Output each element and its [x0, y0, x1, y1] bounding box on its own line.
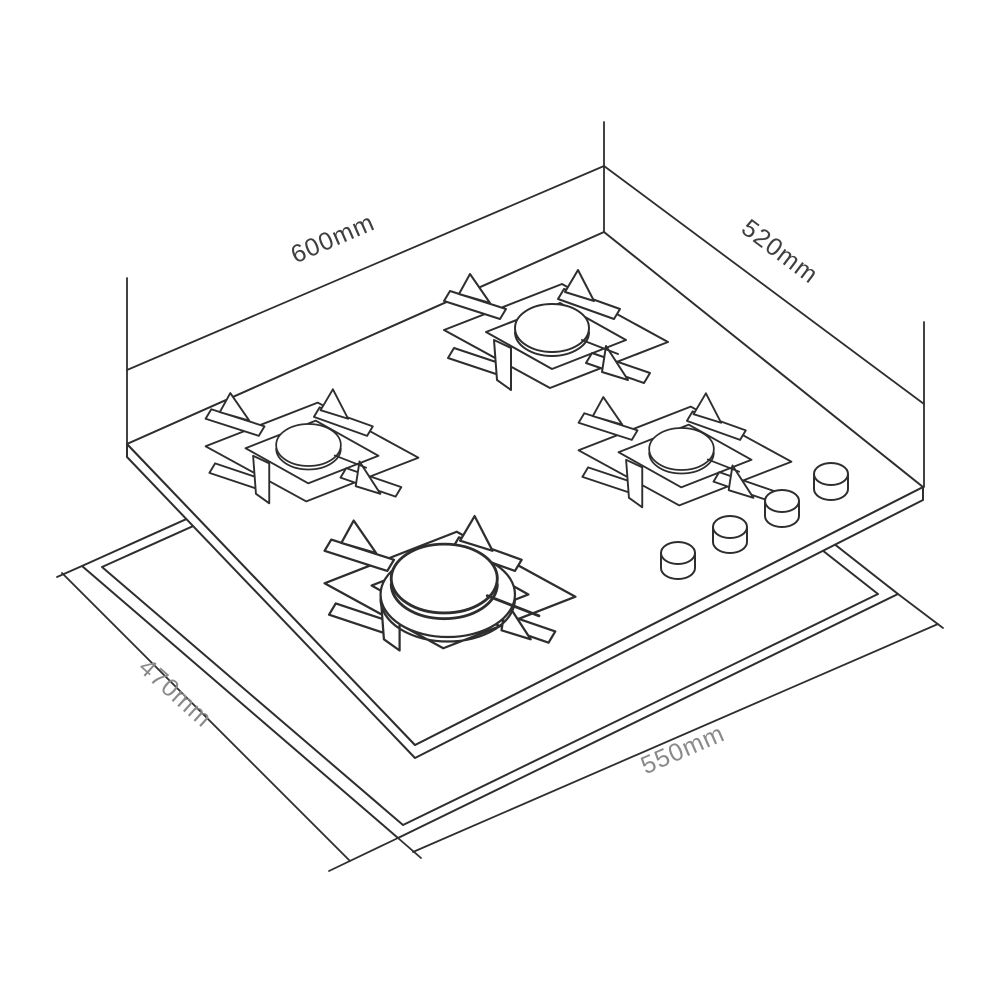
cutout-extension-bottom-b	[329, 838, 398, 871]
hob-dimension-diagram: 600mm 520mm 470mm 550mm	[0, 0, 1000, 1000]
knob-3	[765, 490, 799, 527]
dim-label-cutout-depth: 470mm	[133, 653, 217, 733]
knob-4	[814, 463, 848, 500]
dim-label-top-width: 600mm	[287, 208, 379, 269]
dim-label-cutout-width: 550mm	[637, 719, 729, 780]
cutout-extension-left	[57, 566, 82, 577]
hob-glass-surface	[127, 232, 923, 745]
cutout-extension-bottom-a	[398, 838, 421, 858]
knob-2	[713, 516, 747, 553]
knob-1	[661, 542, 695, 579]
cutout-extension-right	[898, 594, 943, 628]
dim-label-right-depth: 520mm	[736, 214, 823, 290]
hob-technical-drawing: 600mm 520mm 470mm 550mm	[0, 0, 1000, 1000]
